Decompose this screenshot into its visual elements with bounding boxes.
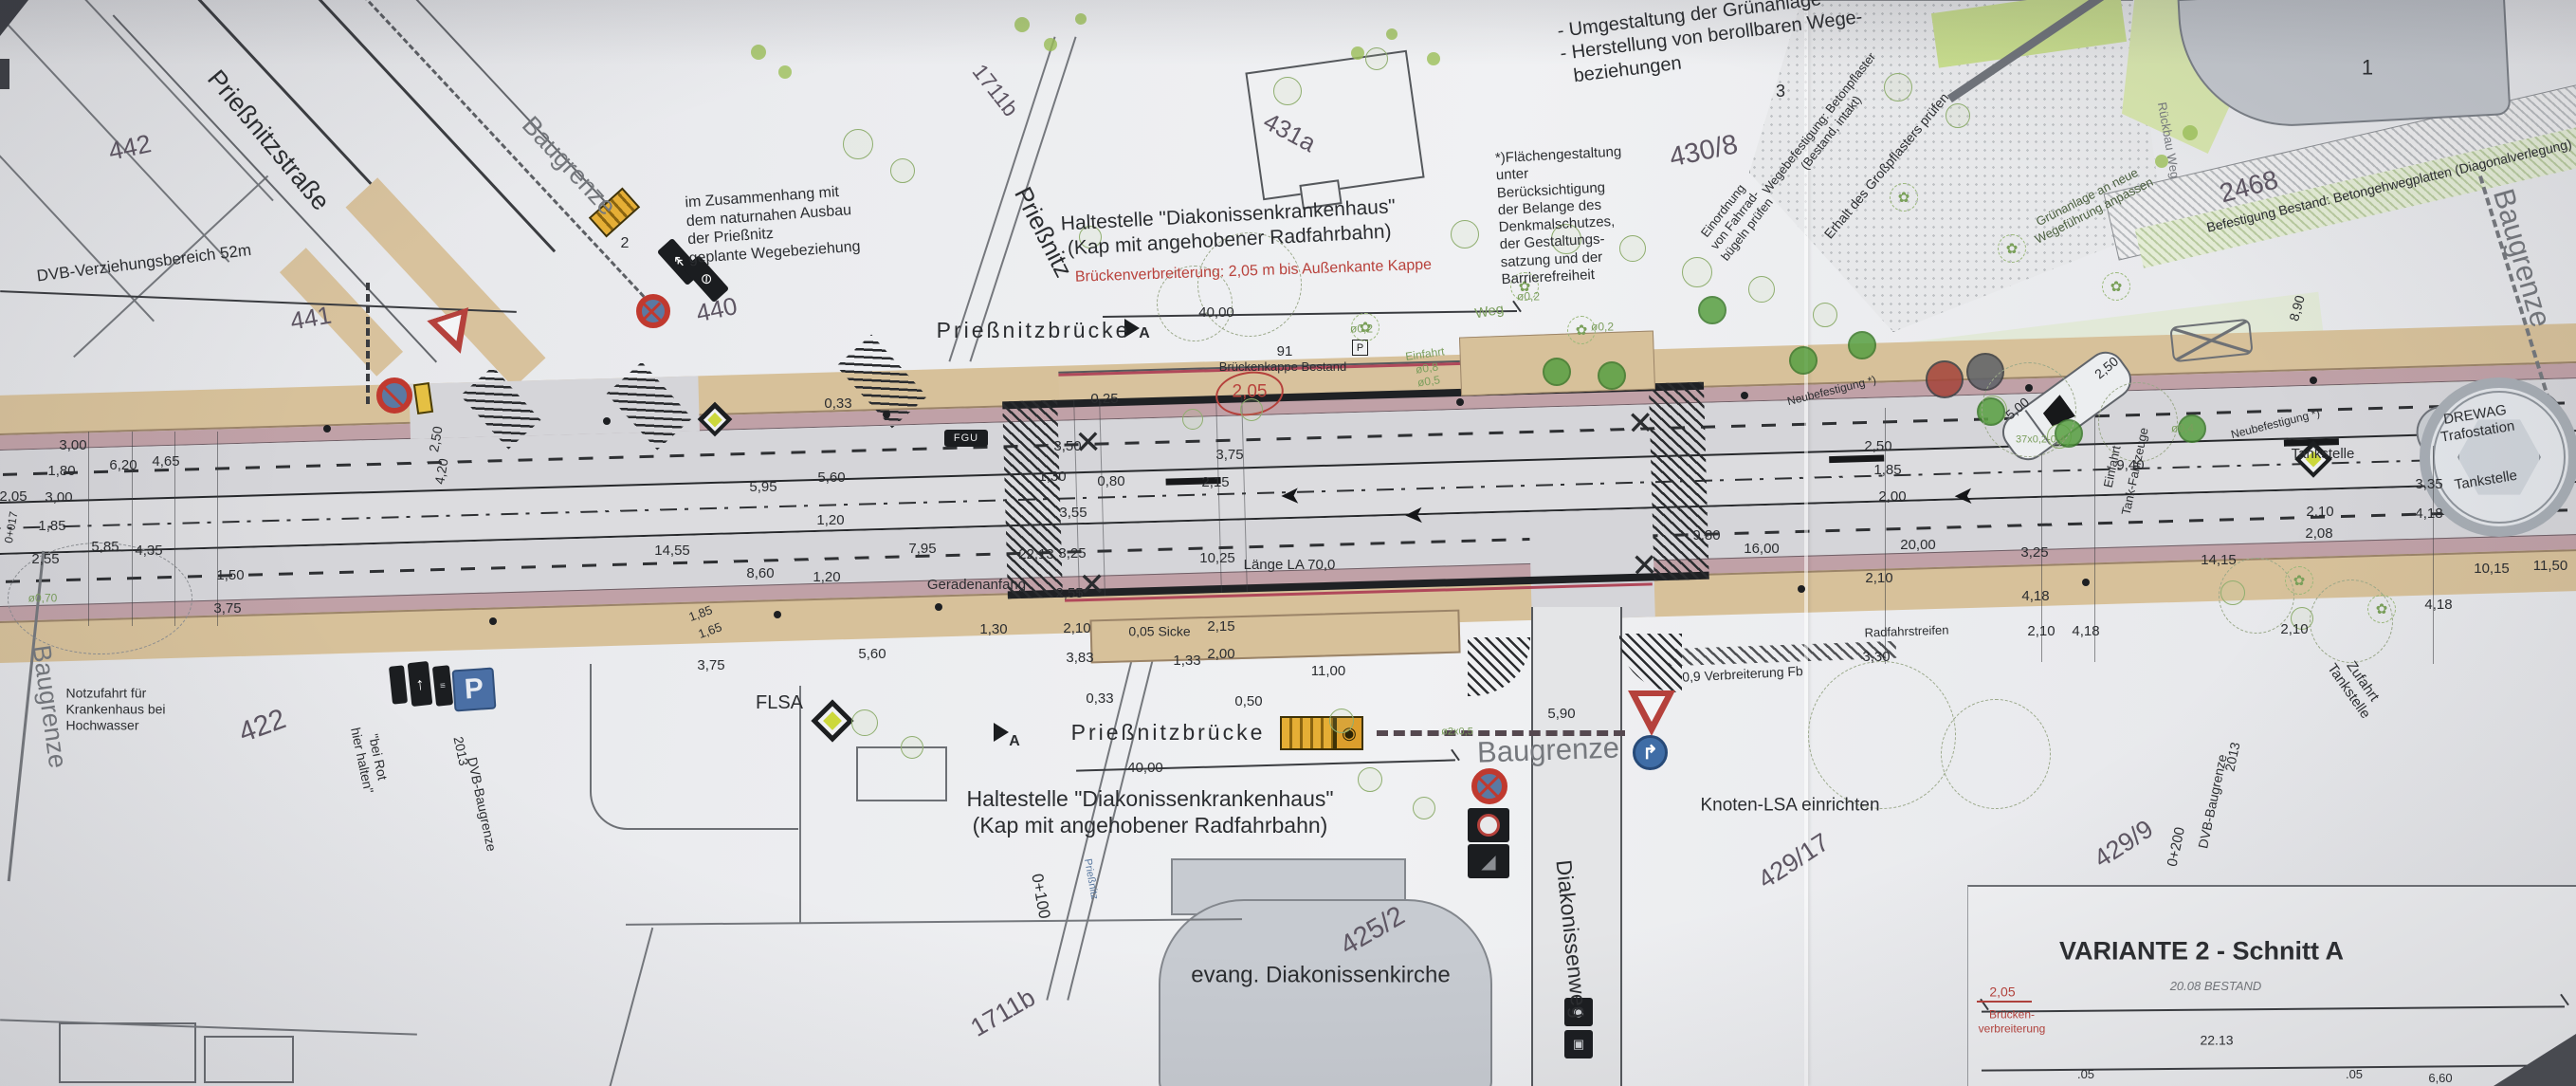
map-label: 4,35 bbox=[135, 543, 162, 560]
map-label: 16,00 bbox=[1744, 541, 1780, 558]
map-label: 1,85 bbox=[686, 602, 714, 625]
map-label: FLSA bbox=[756, 691, 803, 714]
map-label: im Zusammenhang mit dem naturnahen Ausba… bbox=[685, 182, 861, 268]
map-label: 2,50 bbox=[2092, 354, 2122, 383]
map-label: Zufahrt Tankstelle bbox=[2323, 651, 2387, 723]
map-label: 2,00 bbox=[1878, 488, 1906, 506]
map-label: 3 bbox=[1776, 82, 1785, 102]
map-label: 0,33 bbox=[1086, 690, 1113, 708]
map-label: 2,55 bbox=[1055, 585, 1083, 602]
map-label: 9,80 bbox=[1692, 527, 1720, 544]
map-label: 2,50 bbox=[426, 425, 447, 453]
map-label: 0,50 bbox=[1234, 693, 1262, 710]
map-label: 37x0,2-0,4 bbox=[2016, 433, 2065, 446]
map-label: 1,33 bbox=[1173, 653, 1200, 670]
map-label: 11,00 bbox=[1311, 663, 1345, 680]
map-label: 6,60 bbox=[2428, 1071, 2452, 1086]
map-label: 1711b bbox=[965, 982, 1041, 1043]
map-label: Prießnitzbrücke bbox=[937, 317, 1131, 343]
map-label: Knoten-LSA einrichten bbox=[1700, 794, 1879, 816]
map-label: 3,00 bbox=[45, 489, 72, 506]
map-label: Prießnitzbrücke bbox=[1071, 719, 1266, 745]
map-label: Tankstelle bbox=[2454, 468, 2519, 495]
map-label: Haltestelle "Diakonissenkrankenhaus" (Ka… bbox=[1060, 194, 1398, 261]
map-label: ø0,2 bbox=[1517, 290, 1540, 304]
map-label: 40,00 bbox=[1198, 304, 1234, 322]
map-label: .05 bbox=[2077, 1067, 2094, 1082]
map-label: *)Flächengestaltung unter Berücksichtigu… bbox=[1495, 143, 1629, 288]
map-label: 2,50 bbox=[1864, 438, 1891, 455]
map-label: 0+017 bbox=[2, 510, 21, 544]
map-label: 20,00 bbox=[1900, 537, 1936, 554]
map-label: 1 bbox=[2362, 56, 2373, 82]
map-label: Notzufahrt für Krankenhaus bei Hochwasse… bbox=[65, 685, 165, 733]
map-label: .05 bbox=[2346, 1067, 2363, 1082]
map-label: 2,15 bbox=[1201, 474, 1229, 491]
map-label: Prießnitz bbox=[1008, 182, 1079, 283]
map-label: 5,85 bbox=[91, 539, 119, 556]
map-label: 3,55 bbox=[1059, 505, 1087, 522]
map-label: 2,05 bbox=[1233, 380, 1268, 402]
map-label: 9,40 bbox=[2116, 457, 2144, 474]
map-label: Neubefestigung *) bbox=[1786, 373, 1878, 408]
map-label: 0,05 Sicke bbox=[1128, 623, 1190, 639]
map-label: ø0,4 bbox=[2171, 422, 2194, 436]
map-label: 5,60 bbox=[817, 469, 845, 487]
map-label: Wegebefestigung: Betonpflaster (Bestand,… bbox=[1760, 49, 1891, 206]
map-label: 5,90 bbox=[1547, 706, 1575, 723]
map-label: 2,10 bbox=[2280, 621, 2308, 638]
map-label: Weg bbox=[1473, 301, 1505, 322]
map-label: 429/17 bbox=[1752, 827, 1835, 896]
map-label: 3,75 bbox=[213, 600, 241, 617]
map-label: 440 bbox=[693, 291, 740, 329]
map-label: 0,9 Verbreiterung Fb bbox=[1682, 663, 1803, 686]
map-label: 441 bbox=[288, 301, 334, 338]
map-label: 2,05 bbox=[0, 488, 27, 506]
map-label: Rückbau Weg bbox=[2154, 101, 2183, 180]
map-label: 1,85 bbox=[38, 518, 65, 535]
map-label: 429/9 bbox=[2089, 814, 2160, 874]
map-label: 3,30 bbox=[1862, 649, 1890, 666]
map-label: Tank-Fahrzeuge bbox=[2118, 426, 2151, 516]
map-label: 4,18 bbox=[2021, 588, 2049, 605]
map-label: Prießnitzstraße bbox=[201, 64, 337, 216]
map-label: Erhalt des Großpflasters prüfen bbox=[1821, 90, 1953, 243]
map-label: ø0,2 bbox=[1350, 322, 1373, 337]
map-label: Diakonissenweg bbox=[1550, 858, 1593, 1019]
map-label: 0+100 bbox=[1027, 873, 1054, 921]
map-label: 2,10 bbox=[1063, 620, 1090, 637]
map-label: 1,30 bbox=[1038, 469, 1066, 486]
map-label: 3,25 bbox=[1058, 545, 1086, 562]
map-label: 3,75 bbox=[1215, 447, 1243, 464]
map-label: 2,15 bbox=[1207, 618, 1234, 635]
map-label: 2468 bbox=[2216, 163, 2281, 210]
map-label: 14,15 bbox=[2201, 552, 2237, 569]
map-label: 5,00 bbox=[2002, 395, 2033, 424]
map-label: ø0,70 bbox=[28, 592, 58, 606]
labels-layer: PrießnitzstraßeBaugrenzeBaugrenzeBaugren… bbox=[0, 0, 2576, 1086]
map-label: 4,20 bbox=[431, 457, 452, 486]
map-label: 1,50 bbox=[216, 567, 244, 584]
map-label: Brückenverbreiterung: 2,05 m bis Außenka… bbox=[1075, 256, 1433, 287]
map-label: Radfahrstreifen bbox=[1864, 623, 1948, 641]
map-label: 5,60 bbox=[858, 646, 886, 663]
map-label: A bbox=[1139, 324, 1150, 343]
map-label: 0,33 bbox=[824, 396, 851, 413]
map-label: 430/8 bbox=[1667, 128, 1741, 175]
map-label: 3,50 bbox=[1053, 438, 1081, 455]
map-label: 20.08 BESTAND bbox=[2170, 979, 2262, 994]
map-label: 2,55 bbox=[31, 551, 59, 568]
map-label: 3,83 bbox=[1066, 650, 1093, 667]
map-label: ø2x0,5 bbox=[1441, 726, 1473, 738]
map-label: DREWAG Trafostation bbox=[2437, 401, 2515, 447]
map-label: 442 bbox=[106, 128, 155, 168]
map-label: 2,10 bbox=[2027, 623, 2055, 640]
map-label: 8,60 bbox=[746, 565, 774, 582]
map-label: 8,90 bbox=[2286, 294, 2309, 323]
map-label: Tankstelle bbox=[2292, 446, 2355, 463]
map-label: 14,55 bbox=[654, 543, 690, 560]
map-label: "bei Rot hier halten" bbox=[347, 723, 393, 795]
map-label: 4,65 bbox=[152, 453, 179, 470]
map-label: Brückenkappe Bestand bbox=[1219, 359, 1346, 375]
map-label: 5,95 bbox=[749, 479, 776, 496]
map-label: Geradenanfang bbox=[927, 577, 1026, 594]
map-label: Baugrenze bbox=[1476, 729, 1619, 770]
map-label: 425/2 bbox=[1335, 900, 1412, 964]
map-label: 431a bbox=[1258, 106, 1321, 158]
map-label: Einordnung von Fahrrad- bügeln prüfen bbox=[1694, 176, 1776, 264]
map-label: 40,00 bbox=[1127, 760, 1163, 777]
map-label: 2013 bbox=[449, 735, 471, 767]
map-label: 422 bbox=[234, 702, 291, 751]
map-label: Baugrenze bbox=[2485, 185, 2559, 332]
map-label: 0,25 bbox=[1090, 391, 1118, 408]
map-label: DVB-Verziehungsbereich 52m bbox=[36, 241, 253, 286]
map-label: - Umgestaltung der Grünanlage - Herstell… bbox=[1556, 0, 1866, 89]
map-label: 2,10 bbox=[1865, 570, 1892, 587]
map-label: 11,50 bbox=[2533, 558, 2567, 575]
map-label: 3,35 bbox=[2415, 476, 2442, 493]
map-label: 4,18 bbox=[2415, 506, 2442, 523]
map-label: 3,75 bbox=[697, 657, 724, 674]
map-label: Baugrenze bbox=[515, 110, 622, 222]
map-label: 4,18 bbox=[2424, 597, 2452, 614]
map-label: ø0,2 bbox=[1591, 321, 1614, 335]
map-label: 1711b bbox=[967, 59, 1024, 121]
map-label: Neubefestigung *) bbox=[2230, 406, 2322, 441]
map-label: 2,08 bbox=[2305, 525, 2332, 543]
map-label: Haltestelle "Diakonissenkrankenhaus" (Ka… bbox=[966, 785, 1333, 838]
map-label: Baugrenze bbox=[26, 643, 74, 770]
map-label: Grünanlage an neue Wegeführung anpassen bbox=[2025, 161, 2155, 248]
map-label: 7,95 bbox=[908, 541, 936, 558]
map-label: 2 bbox=[621, 234, 630, 253]
map-label: 2,00 bbox=[1207, 646, 1234, 663]
map-label: 3,25 bbox=[2020, 544, 2048, 561]
map-label: 1,65 bbox=[696, 619, 723, 642]
map-label: evang. Diakonissenkirche bbox=[1191, 961, 1450, 988]
map-label: 10,25 bbox=[1199, 550, 1235, 567]
map-label: 3,00 bbox=[59, 437, 86, 454]
map-label: 1,85 bbox=[1873, 462, 1901, 479]
map-label: DVB-Baugrenze bbox=[464, 756, 500, 854]
map-label: 91 bbox=[1277, 343, 1293, 360]
map-label: 22.13 bbox=[2200, 1032, 2233, 1048]
map-label: 0+200 bbox=[2165, 825, 2190, 868]
map-label: A bbox=[1009, 732, 1020, 751]
map-label: 1,20 bbox=[813, 569, 840, 586]
map-label: 0,80 bbox=[1097, 473, 1124, 490]
map-label: 4,18 bbox=[2072, 623, 2099, 640]
map-label: 1,20 bbox=[816, 512, 844, 529]
map-label: 1,80 bbox=[47, 463, 75, 480]
map-label: 22,13 bbox=[1018, 546, 1054, 563]
map-label: Brücken- verbreiterung bbox=[1979, 1007, 2046, 1035]
map-label: 6,20 bbox=[109, 457, 137, 474]
map-label: VARIANTE 2 - Schnitt A bbox=[2059, 936, 2344, 967]
map-label: 10,15 bbox=[2474, 561, 2510, 578]
map-label: 2,05 bbox=[1989, 984, 2015, 1000]
map-label: Prießnitz bbox=[1081, 857, 1101, 900]
map-label: 1,30 bbox=[979, 621, 1007, 638]
map-label: Einfahrt bbox=[2101, 444, 2125, 488]
map-label: Befestigung Bestand: Betongehwegplatten … bbox=[2205, 136, 2573, 235]
map-label: 2013 bbox=[2221, 741, 2243, 773]
map-label: 2,10 bbox=[2306, 504, 2333, 521]
map-label: Einfahrt ø0,8 ø0,5 bbox=[1404, 344, 1449, 391]
map-label: DVB-Baugrenze bbox=[2195, 753, 2231, 851]
site-plan-photo: ✕ ✕ ✕ ✕ ➤ ➤ ➤ bbox=[0, 0, 2576, 1086]
map-label: Länge LA 70,0 bbox=[1244, 557, 1336, 574]
